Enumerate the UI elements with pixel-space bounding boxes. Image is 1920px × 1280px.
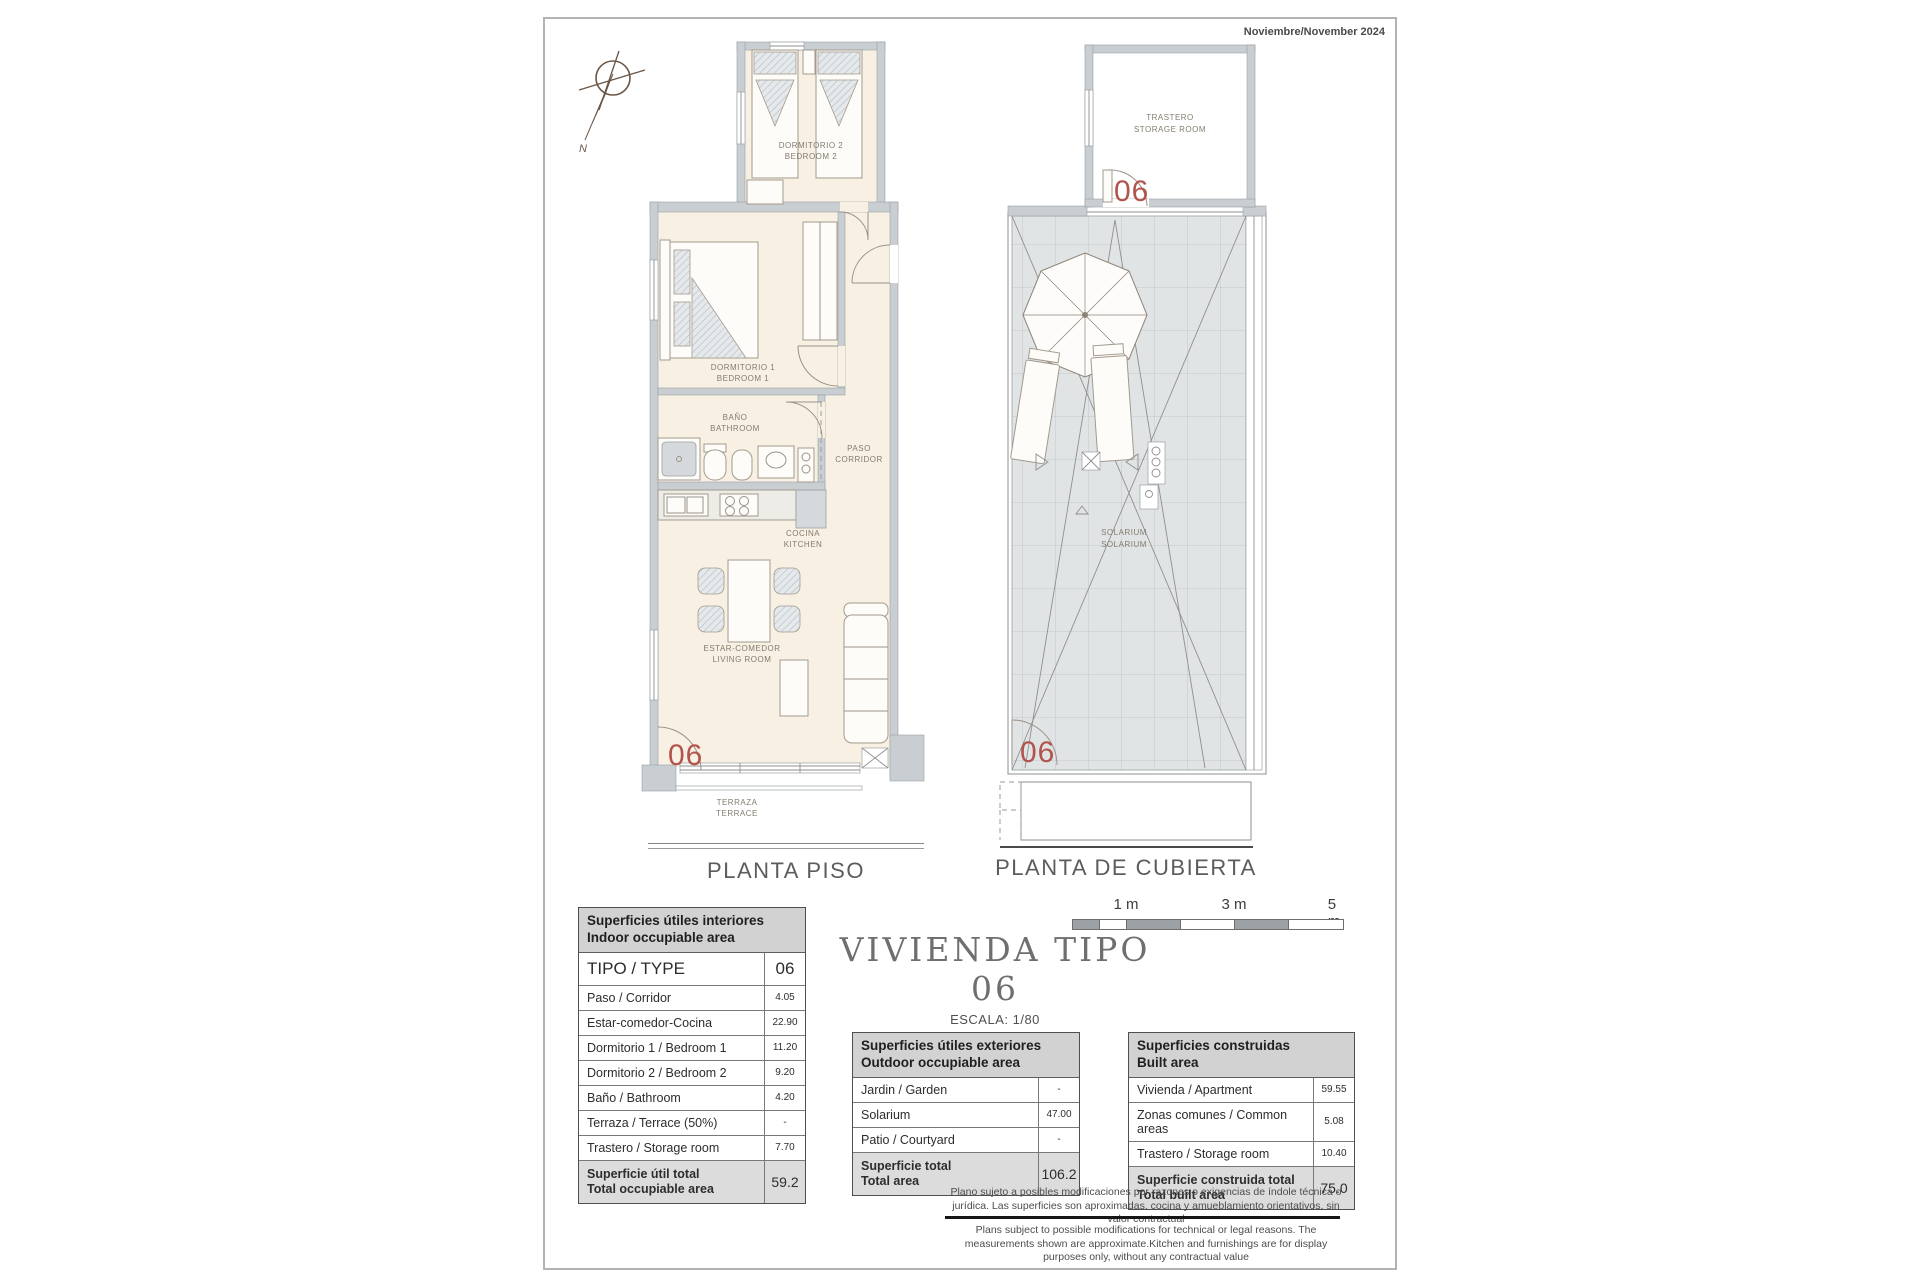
row-label: Estar-comedor-Cocina <box>579 1011 764 1035</box>
row-value: 4.20 <box>764 1086 805 1110</box>
type-label: TIPO / TYPE <box>579 953 764 985</box>
floor-plan-underline <box>648 843 924 849</box>
row-label: Baño / Bathroom <box>579 1086 764 1110</box>
scale-bar-track <box>1072 919 1344 930</box>
roof-plan: 06 TRASTERO STORAGE ROOM <box>990 30 1290 860</box>
row-label: Dormitorio 1 / Bedroom 1 <box>579 1036 764 1060</box>
roof-extension <box>1000 782 1251 840</box>
table-row: Estar-comedor-Cocina 22.90 <box>579 1011 805 1036</box>
row-label: Patio / Courtyard <box>853 1128 1038 1152</box>
row-value: 5.08 <box>1313 1103 1354 1141</box>
compass-north-label: N <box>579 143 587 155</box>
outdoor-table-title-en: Outdoor occupiable area <box>861 1055 1071 1072</box>
roof-plan-title: PLANTA DE CUBIERTA <box>993 855 1259 881</box>
storage-unit-number: 06 <box>1114 175 1149 208</box>
row-label: Terraza / Terrace (50%) <box>579 1111 764 1135</box>
scale-label-1m: 1 m <box>1113 896 1138 913</box>
row-value: 10.40 <box>1313 1142 1354 1166</box>
living-label-es: ESTAR-COMEDOR <box>703 644 780 653</box>
row-value: 22.90 <box>764 1011 805 1035</box>
row-value: 11.20 <box>764 1036 805 1060</box>
row-label: Vivienda / Apartment <box>1129 1078 1313 1102</box>
kitchen-label-en: KITCHEN <box>784 540 823 549</box>
row-value: 7.70 <box>764 1136 805 1160</box>
table-row: TIPO / TYPE 06 <box>579 953 805 986</box>
built-table-title-es: Superficies construidas <box>1137 1038 1346 1055</box>
corridor-label-es: PASO <box>847 444 871 453</box>
table-row: Terraza / Terrace (50%) - <box>579 1111 805 1136</box>
terrace-label-es: TERRAZA <box>717 798 758 807</box>
disclaimer-divider <box>945 1216 1340 1219</box>
row-value: 47.00 <box>1038 1103 1079 1127</box>
tv-bench <box>780 660 808 716</box>
outdoor-areas-table: Superficies útiles exteriores Outdoor oc… <box>852 1032 1080 1196</box>
bedroom2-label-es: DORMITORIO 2 <box>779 141 844 150</box>
floor-plan-title: PLANTA PISO <box>630 858 942 884</box>
sun-lounger <box>1090 343 1134 461</box>
bedroom1-bed <box>660 240 758 360</box>
scale-bar: 1 m 3 m 5 m <box>1072 896 1344 932</box>
row-label: Solarium <box>853 1103 1038 1127</box>
storage-door-leaf <box>1103 170 1112 202</box>
disclaimer-en: Plans subject to possible modifications … <box>948 1224 1344 1265</box>
dining-table <box>728 560 770 642</box>
table-row: Dormitorio 2 / Bedroom 2 9.20 <box>579 1061 805 1086</box>
corridor-label-en: CORRIDOR <box>835 455 883 464</box>
table-row: Trastero / Storage room 7.70 <box>579 1136 805 1161</box>
total-label-en: Total occupiable area <box>587 1182 756 1197</box>
floor-plan: 06 DORMITORIO 2 BEDROOM 2 DORMITORIO 1 B… <box>640 30 940 820</box>
dwelling-type-title: VIVIENDA TIPO 06 <box>820 930 1170 1008</box>
title-block: VIVIENDA TIPO 06 ESCALA: 1/80 <box>820 930 1170 1027</box>
type-value: 06 <box>764 953 805 985</box>
floor-unit-number: 06 <box>668 739 703 772</box>
solarium-label-es: SOLARIUM <box>1101 528 1147 537</box>
indoor-areas-table: Superficies útiles interiores Indoor occ… <box>578 907 806 1204</box>
scale-label-3m: 3 m <box>1221 896 1246 913</box>
row-label: Trastero / Storage room <box>1129 1142 1313 1166</box>
kitchen-label-es: COCINA <box>786 529 820 538</box>
bedroom1-label-es: DORMITORIO 1 <box>711 363 776 372</box>
table-row: Baño / Bathroom 4.20 <box>579 1086 805 1111</box>
indoor-table-title-en: Indoor occupiable area <box>587 930 797 947</box>
indoor-table-title-es: Superficies útiles interiores <box>587 913 797 930</box>
storage-label-en: STORAGE ROOM <box>1134 125 1206 134</box>
total-label-es: Superficie total <box>861 1159 1030 1174</box>
outdoor-table-title-es: Superficies útiles exteriores <box>861 1038 1071 1055</box>
table-row: Paso / Corridor 4.05 <box>579 986 805 1011</box>
table-row: Zonas comunes / Common areas 5.08 <box>1129 1103 1354 1142</box>
row-label: Zonas comunes / Common areas <box>1129 1103 1313 1141</box>
table-row: Jardin / Garden - <box>853 1078 1079 1103</box>
row-label: Trastero / Storage room <box>579 1136 764 1160</box>
total-label-es: Superficie útil total <box>587 1167 756 1182</box>
table-row: Patio / Courtyard - <box>853 1128 1079 1153</box>
row-label: Paso / Corridor <box>579 986 764 1010</box>
table-row: Dormitorio 1 / Bedroom 1 11.20 <box>579 1036 805 1061</box>
table-row: Solarium 47.00 <box>853 1103 1079 1128</box>
total-value: 59.2 <box>764 1161 805 1203</box>
row-label: Dormitorio 2 / Bedroom 2 <box>579 1061 764 1085</box>
row-value: - <box>764 1111 805 1135</box>
plan-sheet: Noviembre/November 2024 N <box>0 0 1920 1280</box>
row-value: - <box>1038 1078 1079 1102</box>
storage-label-es: TRASTERO <box>1146 113 1194 122</box>
terrace-label-en: TERRACE <box>716 809 758 818</box>
bedroom1-label-en: BEDROOM 1 <box>717 374 770 383</box>
living-label-en: LIVING ROOM <box>713 655 772 664</box>
kitchen-tall-unit <box>796 490 826 528</box>
row-value: 59.55 <box>1313 1078 1354 1102</box>
solarium-unit-number: 06 <box>1020 736 1055 769</box>
table-total-row: Superficie útil total Total occupiable a… <box>579 1161 805 1203</box>
toilet <box>704 450 726 480</box>
disclaimer-es: Plano sujeto a posibles modificaciones p… <box>948 1186 1344 1227</box>
bedroom2-closet <box>747 180 783 204</box>
row-value: 9.20 <box>764 1061 805 1085</box>
vanity <box>758 446 794 478</box>
bath-label-en: BATHROOM <box>710 424 760 433</box>
solarium-label-en: SOLARIUM <box>1101 540 1147 549</box>
built-areas-table: Superficies construidas Built area Vivie… <box>1128 1032 1355 1210</box>
built-table-title-en: Built area <box>1137 1055 1346 1072</box>
bedroom2-label-en: BEDROOM 2 <box>785 152 838 161</box>
row-label: Jardin / Garden <box>853 1078 1038 1102</box>
table-row: Vivienda / Apartment 59.55 <box>1129 1078 1354 1103</box>
table-row: Trastero / Storage room 10.40 <box>1129 1142 1354 1167</box>
row-value: 4.05 <box>764 986 805 1010</box>
bidet <box>732 450 752 480</box>
row-value: - <box>1038 1128 1079 1152</box>
bath-label-es: BAÑO <box>723 413 748 422</box>
compass-icon: N <box>575 48 649 158</box>
scale-note: ESCALA: 1/80 <box>820 1012 1170 1027</box>
